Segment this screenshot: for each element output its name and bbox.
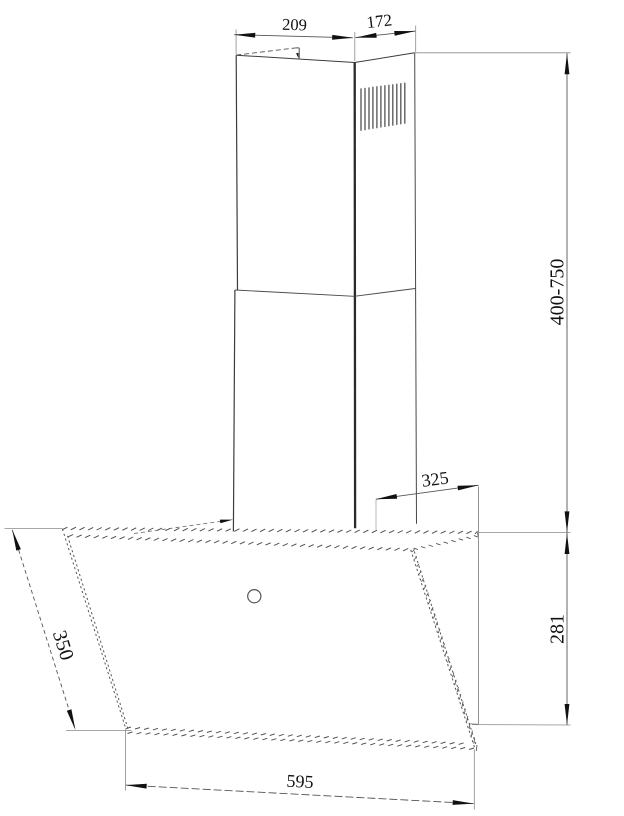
- svg-text:281: 281: [547, 614, 569, 644]
- svg-text:325: 325: [420, 467, 449, 490]
- svg-text:400-750: 400-750: [547, 259, 569, 326]
- svg-text:172: 172: [366, 10, 393, 32]
- svg-text:209: 209: [282, 15, 307, 35]
- svg-text:595: 595: [286, 771, 314, 792]
